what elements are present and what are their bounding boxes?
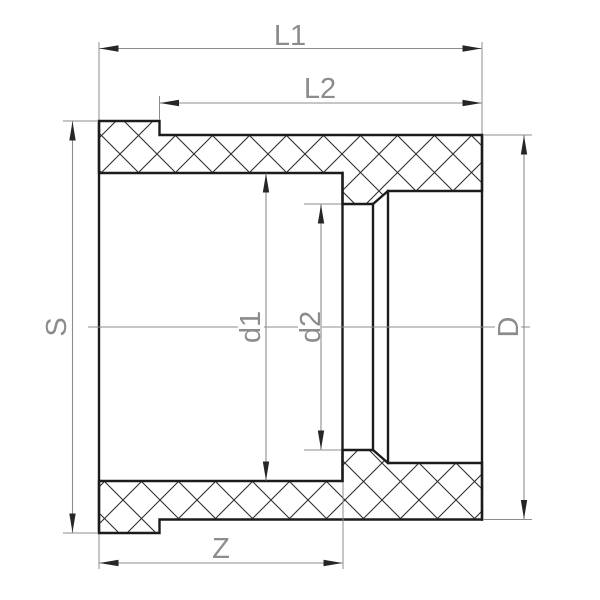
dimension-s: S	[41, 122, 73, 533]
dim-label-l2: L2	[304, 73, 336, 105]
dimension-d2: d2	[295, 205, 327, 450]
dimension-l2: L2	[160, 73, 482, 105]
dimension-d-outer: D	[493, 136, 525, 520]
pipe-fitting-section-drawing: L1 L2 Z S d1 d2 D	[0, 0, 600, 600]
section-wall-bottom	[99, 450, 482, 533]
dim-label-d2: d2	[295, 311, 327, 343]
dim-label-l1: L1	[274, 20, 306, 52]
section-wall-top	[99, 121, 482, 204]
dim-label-d1: d1	[235, 311, 267, 343]
dim-label-s: S	[41, 317, 73, 336]
technical-drawing-canvas: L1 L2 Z S d1 d2 D	[0, 0, 600, 600]
dim-label-z: Z	[212, 533, 230, 565]
dimension-z: Z	[100, 533, 343, 565]
dimension-l1: L1	[100, 20, 482, 52]
dimension-d1: d1	[235, 174, 267, 481]
dim-label-d-outer: D	[493, 317, 525, 338]
